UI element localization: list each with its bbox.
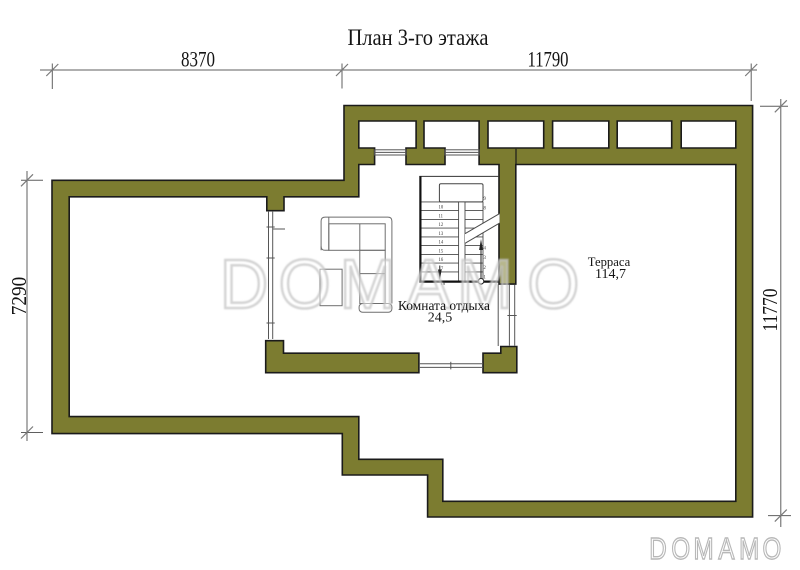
svg-text:13: 13 xyxy=(439,232,444,237)
svg-text:10: 10 xyxy=(439,206,444,211)
svg-text:8370: 8370 xyxy=(181,47,215,72)
svg-text:11770: 11770 xyxy=(758,289,782,332)
svg-text:D: D xyxy=(649,531,666,565)
svg-text:План 3-го этажа: План 3-го этажа xyxy=(348,25,489,50)
svg-text:11790: 11790 xyxy=(528,47,569,72)
svg-text:O: O xyxy=(763,531,782,565)
svg-text:M: M xyxy=(340,245,396,324)
svg-text:M: M xyxy=(739,531,759,565)
svg-text:A: A xyxy=(718,531,735,565)
svg-text:O: O xyxy=(671,531,690,565)
svg-text:7290: 7290 xyxy=(7,277,31,316)
svg-text:M: M xyxy=(694,531,714,565)
svg-text:24,5: 24,5 xyxy=(428,311,453,326)
svg-text:114,7: 114,7 xyxy=(595,267,626,282)
svg-text:D: D xyxy=(220,245,269,324)
svg-text:O: O xyxy=(278,245,330,324)
svg-text:O: O xyxy=(527,245,579,324)
svg-text:11: 11 xyxy=(439,214,444,219)
svg-text:12: 12 xyxy=(439,223,444,228)
